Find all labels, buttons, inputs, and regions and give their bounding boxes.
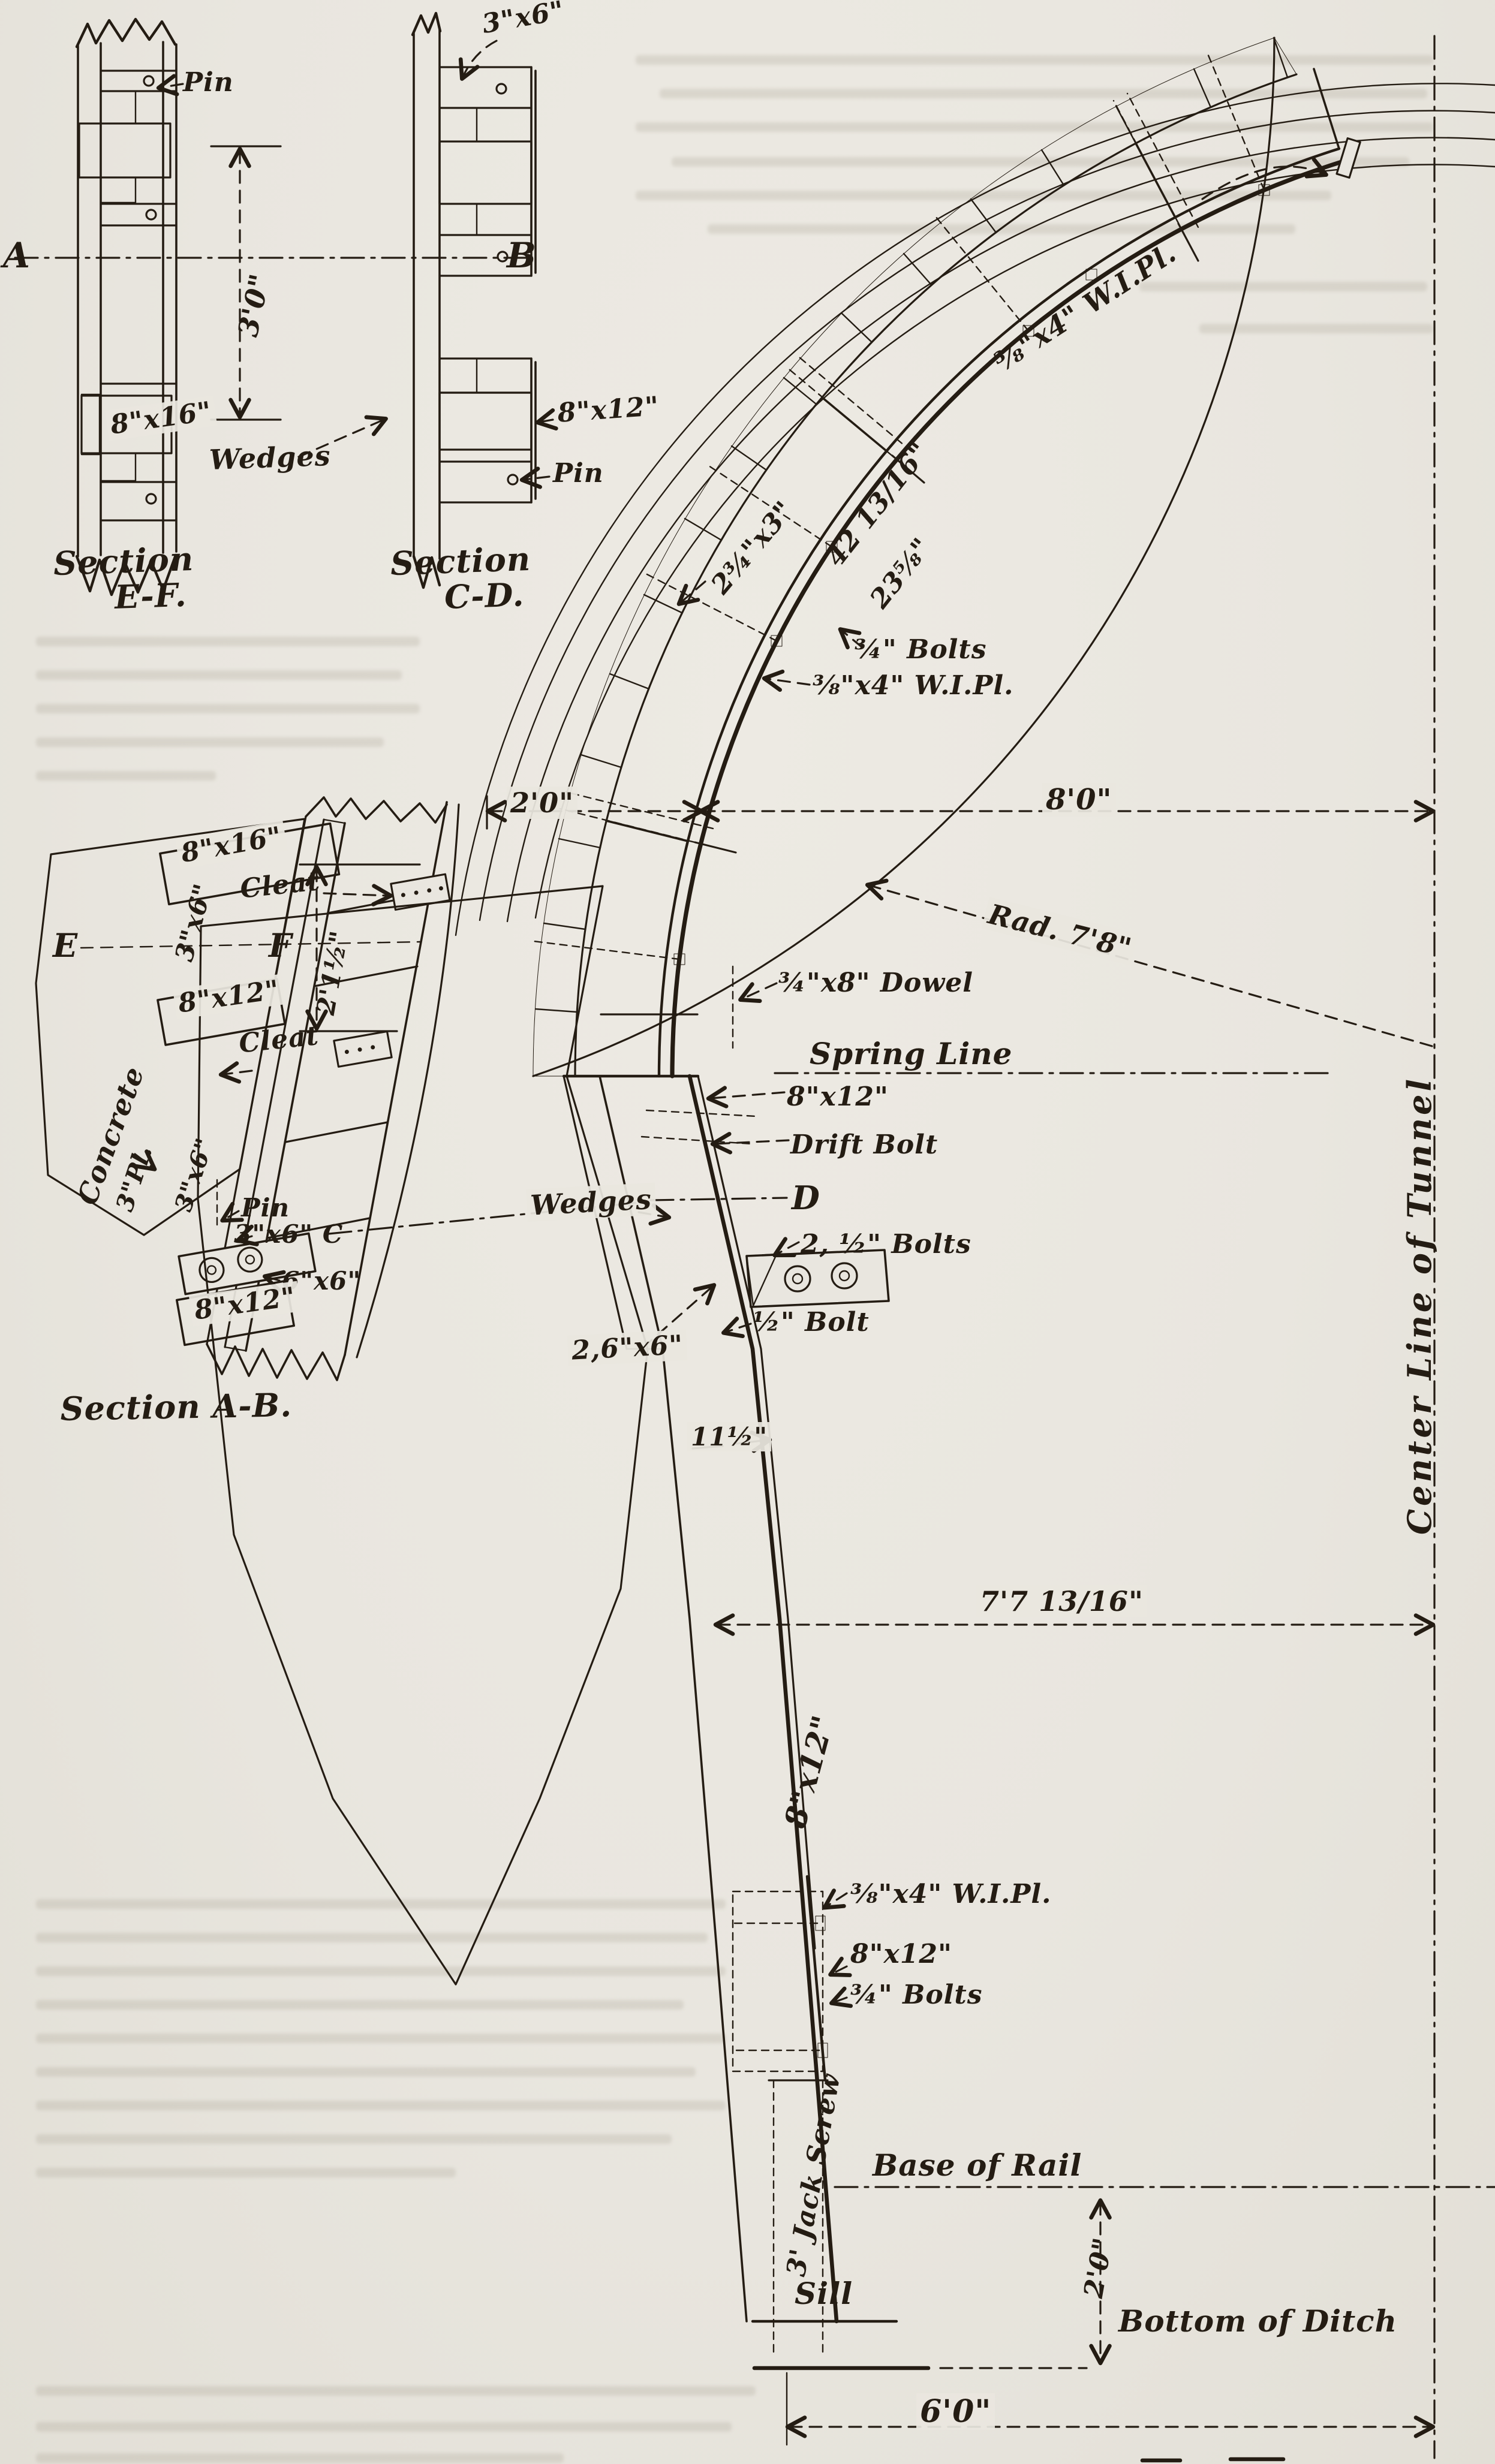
section-ef-linework — [15, 19, 533, 595]
drift-bolt-label: Drift Bolt — [790, 1129, 938, 1160]
timbering-width-dim: 2'0" — [507, 787, 577, 819]
plate-bottom-label: ⅜"x4" W.I.Pl. — [850, 1879, 1051, 1909]
ab-caption: Section A-B. — [60, 1385, 293, 1428]
two-bolts-label: 2, ½" Bolts — [801, 1229, 971, 1260]
base-of-rail-label: Base of Rail — [873, 2147, 1082, 2183]
main-arch-linework — [456, 38, 1495, 1076]
bottom-of-ditch-label: Bottom of Ditch — [1118, 2303, 1397, 2339]
spring-line-label: Spring Line — [810, 1036, 1012, 1071]
ditch-width-dim: 6'0" — [916, 2393, 995, 2430]
blocks-label: 2,6"x6" — [567, 1330, 688, 1366]
center-line-label: Center Line of Tunnel — [1400, 1076, 1439, 1535]
cd-pin-label: Pin — [553, 458, 604, 489]
datum-point-b: B — [507, 235, 537, 276]
half-span-dim: 8'0" — [1042, 783, 1116, 817]
lower-span-dim: 7'7 13/16" — [976, 1585, 1147, 1617]
ab-point-e: E — [53, 926, 78, 965]
ef-caption-line2: E-F. — [114, 576, 187, 616]
datum-point-d: D — [792, 1179, 820, 1217]
ef-wedges-label: Wedges — [209, 439, 331, 476]
sill-label: Sill — [795, 2276, 853, 2311]
arch-plate-mid-label: ⅜"x4" W.I.Pl. — [813, 670, 1013, 701]
cd-caption-line2: C-D. — [444, 575, 525, 616]
datum-point-a: A — [3, 235, 31, 276]
arch-bolts-label: ¾" Bolts — [855, 634, 986, 665]
wall-offset-dim: 11½" — [687, 1422, 771, 1451]
dowel-label: ¾"x8" Dowel — [778, 968, 973, 998]
half-bolt-label: ½" Bolt — [753, 1307, 870, 1338]
drawing-linework — [0, 0, 1495, 2464]
figure-canvas: Pin 3'0" 8"x16" Wedges Section E-F. A B … — [0, 0, 1495, 2464]
wedges-label: Wedges — [526, 1183, 656, 1222]
ab-pin-label: Pin — [241, 1193, 290, 1222]
wall-post-label: 8"x12" — [787, 1082, 889, 1112]
section-cd-linework — [413, 13, 553, 588]
ab-brace-label: 3"x6" C — [234, 1219, 343, 1249]
main-wall-linework — [198, 886, 1283, 2460]
ab-point-f: F — [269, 926, 292, 965]
block-bottom-label: 8"x12" — [850, 1939, 952, 1969]
ef-pin-label: Pin — [183, 67, 234, 98]
bolts-bottom-label: ¾" Bolts — [850, 1980, 982, 2010]
